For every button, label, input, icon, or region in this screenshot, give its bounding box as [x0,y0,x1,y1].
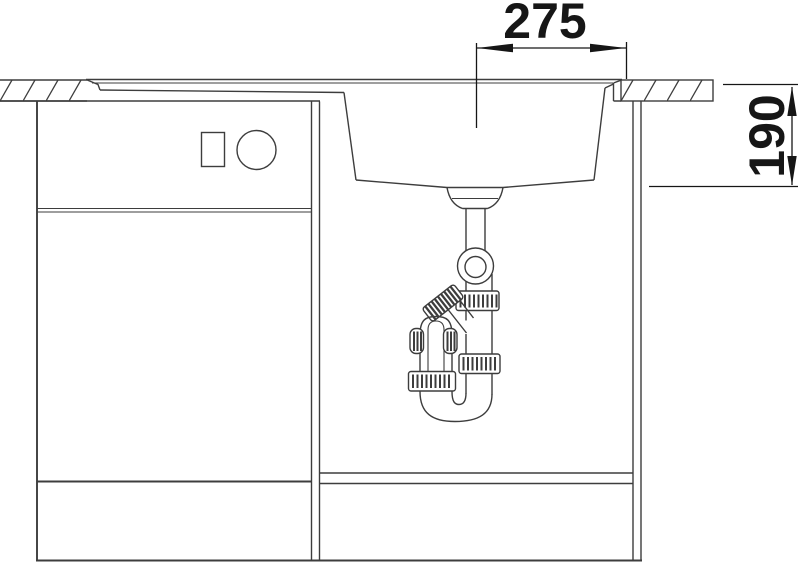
drain-siphon [409,188,504,422]
sink-section [86,80,622,188]
dimension-width: 275 [477,0,627,128]
u-bend-inner [452,392,466,405]
arrowhead-left [477,44,513,53]
left-door-gap [37,209,312,213]
u-bend-outer [420,392,492,422]
tailpipe [466,209,485,255]
sink-cabinet-shelf [320,473,634,484]
appliance-symbol-circle [237,131,276,170]
union-nut-trap-knurl [413,375,449,389]
basin-right-wall [594,84,614,180]
sink-drainboard [100,90,344,93]
cabinet-middle-wall [312,102,320,561]
swivel-elbow-outer [458,248,494,284]
dimension-depth-label: 190 [739,94,795,177]
union-nut-lower [459,354,500,374]
countertop-slab-left-hatch [0,80,87,101]
pipe-middle [466,311,492,355]
countertop-slab-right-hatch [621,80,713,101]
dishwasher-stub-cap [422,284,464,322]
sink-rim-right-end [614,80,622,101]
arrowhead-right [590,44,626,53]
appliance-symbol-square [202,133,225,167]
basin-left-wall [344,93,356,181]
basin-bottom [356,180,594,188]
cabinet [0,101,642,561]
trap-inlet-arm-inner [428,321,444,372]
installation-drawing: 275 190 [0,0,800,564]
pipe-lower [466,374,492,395]
cabinet-right-wall [633,102,641,561]
sink-rim-left-nose [86,80,100,91]
union-nut-upper-knurl [461,295,497,308]
dimension-width-label: 275 [503,0,586,49]
